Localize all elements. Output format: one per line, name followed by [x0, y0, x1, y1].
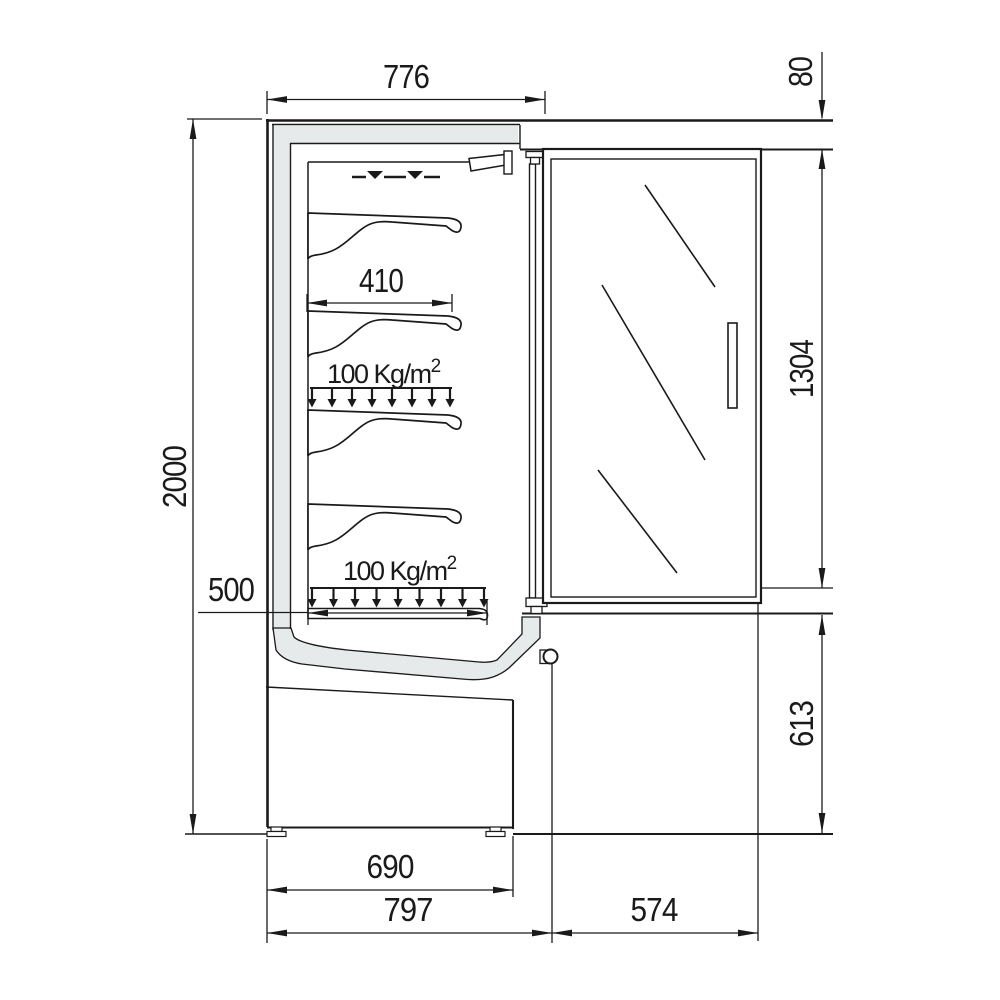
- dim-top-width: 776: [267, 58, 545, 114]
- door-handle: [728, 323, 737, 408]
- dim-label-797: 797: [384, 891, 433, 928]
- glass-door-open: [543, 149, 761, 603]
- closed-door-edge: [530, 164, 536, 598]
- cabinet-section-drawing: 776 80 1304 613 2000 410: [0, 0, 1000, 1000]
- level-mark-icon: [367, 171, 383, 179]
- hinge-pin-icon: [544, 650, 558, 664]
- dim-body-depth: 797: [267, 891, 552, 936]
- technical-drawing-canvas: 776 80 1304 613 2000 410: [0, 0, 1000, 1000]
- top-hinge: [526, 152, 544, 165]
- dim-label-2000: 2000: [156, 445, 193, 508]
- dim-label-500: 500: [208, 571, 255, 608]
- dim-label-410: 410: [359, 262, 404, 299]
- shelf-load-label-upper: 100 Kg/m2: [327, 356, 441, 389]
- dim-top-gap: 80: [782, 52, 825, 120]
- bottom-shelf: [308, 609, 488, 620]
- air-duct: [469, 151, 512, 174]
- dim-label-613: 613: [783, 701, 820, 747]
- base-plinth: [185, 687, 833, 837]
- shelf-4: [308, 504, 461, 550]
- shelf-1: [308, 213, 461, 259]
- dim-label-574: 574: [631, 891, 679, 928]
- dim-label-690: 690: [367, 848, 415, 885]
- shelf-3: [308, 410, 461, 456]
- insulation-bottom-band: [273, 617, 540, 680]
- dim-overall-height: 2000: [156, 119, 262, 834]
- load-arrows-lower: [308, 588, 489, 608]
- dim-label-1304: 1304: [783, 339, 820, 398]
- dim-label-80: 80: [782, 56, 819, 87]
- shelf-load-label-lower: 100 Kg/m2: [343, 553, 457, 586]
- level-mark-icon: [407, 171, 423, 179]
- shelf-2: [308, 311, 461, 357]
- dim-door-swing: 574: [552, 891, 758, 936]
- dim-plinth-width: 690: [267, 848, 513, 893]
- dim-shelf-depth: 410: [307, 262, 452, 312]
- dim-label-776: 776: [383, 58, 429, 95]
- dim-lower-height: 613: [783, 615, 825, 833]
- dim-door-height: 1304: [761, 149, 833, 588]
- load-limit-line: [352, 171, 440, 179]
- load-arrows-upper: [308, 388, 455, 408]
